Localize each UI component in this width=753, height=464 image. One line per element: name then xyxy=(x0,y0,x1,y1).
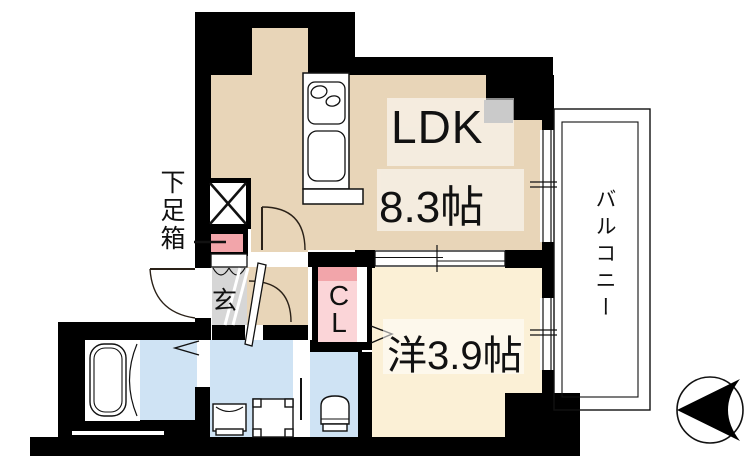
entrance-label: 玄 xyxy=(212,281,237,317)
washing-machine-icon xyxy=(253,399,293,437)
washbasin-icon xyxy=(213,404,246,435)
entrance-door-swing xyxy=(150,269,195,318)
ldk-size-label: 8.3帖 xyxy=(379,171,484,235)
floorplan-canvas: LDK 8.3帖 洋3.9帖 CL 玄 下足箱 バルコニー xyxy=(0,0,753,464)
toilet-icon xyxy=(321,396,349,431)
bathtub-icon xyxy=(85,340,140,421)
ldk-label: LDK xyxy=(391,100,483,154)
bathroom-threshold xyxy=(72,431,164,435)
stove-icon xyxy=(308,82,345,124)
north-arrow-icon xyxy=(677,377,743,443)
crossed-box-icon xyxy=(210,183,246,224)
closet-label: CL xyxy=(325,282,353,336)
western-room-label: 洋3.9帖 xyxy=(387,323,523,381)
sink-icon xyxy=(308,131,345,181)
shoe-cabinet-counter xyxy=(211,254,247,267)
floorplan-drawing xyxy=(0,0,753,464)
balcony-label: バルコニー xyxy=(589,188,619,323)
shoe-cabinet-label: 下足箱 xyxy=(153,169,189,253)
toilet-sliding-door xyxy=(293,340,310,437)
